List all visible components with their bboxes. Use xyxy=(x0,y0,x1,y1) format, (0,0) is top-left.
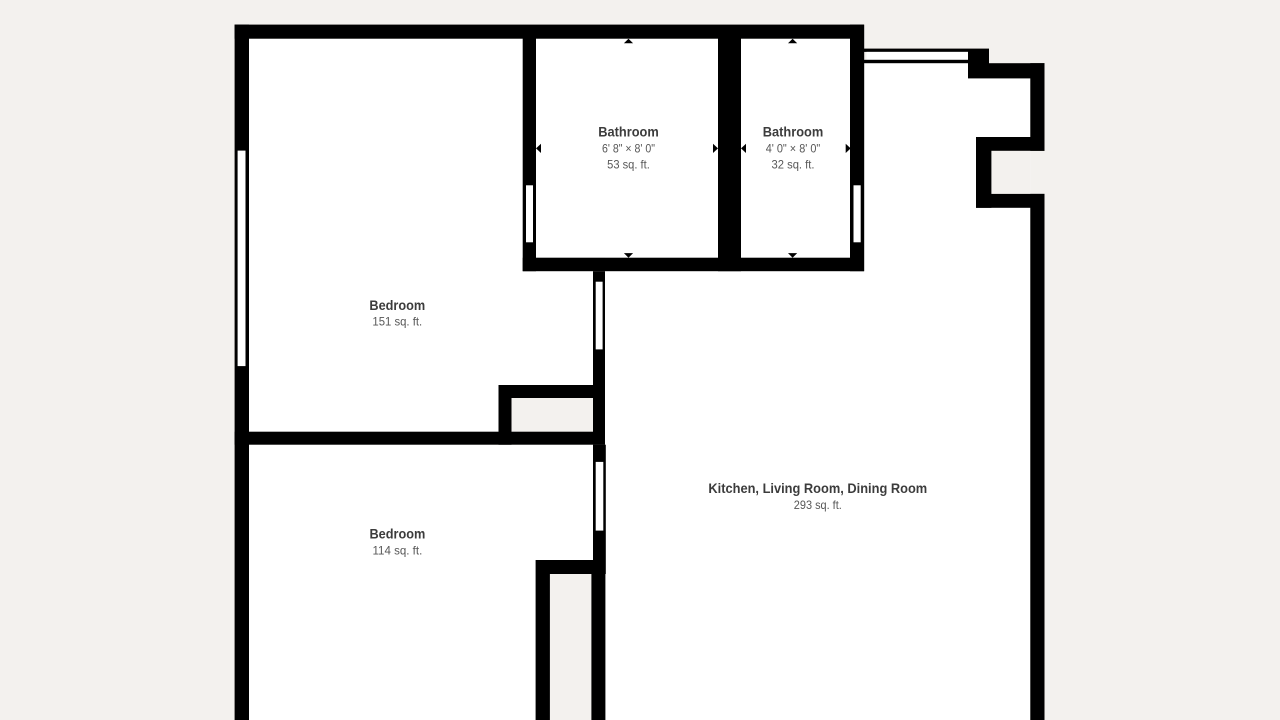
svg-text:293 sq. ft.: 293 sq. ft. xyxy=(794,498,842,512)
svg-text:Bedroom: Bedroom xyxy=(369,297,425,313)
svg-text:4' 0" × 8' 0": 4' 0" × 8' 0" xyxy=(766,142,821,156)
svg-text:Bedroom: Bedroom xyxy=(370,525,426,541)
svg-text:6' 8" × 8' 0": 6' 8" × 8' 0" xyxy=(602,142,655,156)
svg-text:151 sq. ft.: 151 sq. ft. xyxy=(372,315,422,329)
svg-text:Kitchen, Living Room, Dining R: Kitchen, Living Room, Dining Room xyxy=(708,480,927,496)
svg-text:Bathroom: Bathroom xyxy=(598,124,659,140)
svg-text:32 sq. ft.: 32 sq. ft. xyxy=(772,157,815,171)
svg-text:Bathroom: Bathroom xyxy=(763,124,824,140)
svg-text:114 sq. ft.: 114 sq. ft. xyxy=(373,544,423,558)
svg-text:53 sq. ft.: 53 sq. ft. xyxy=(607,157,650,171)
